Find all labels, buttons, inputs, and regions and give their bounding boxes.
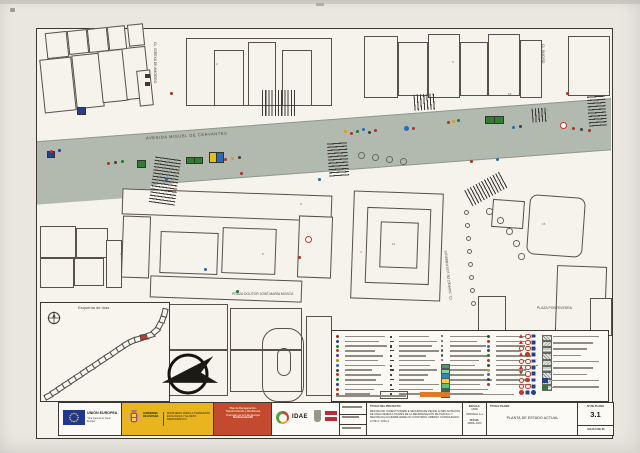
roundabout-sign [404, 126, 409, 131]
traffic-sign-glyph [519, 340, 523, 344]
legend-text-line [399, 350, 439, 352]
scanned-plan-sheet: AVENIDA MIGUEL DE CERVANTES CL. IGREXA D… [0, 0, 640, 453]
legend-text-line [345, 365, 385, 367]
municipal-emblem-icon [314, 410, 321, 422]
parcel-number: 3 [120, 252, 122, 256]
ministerio-text: MINISTERIO PARA LA TRANSICIÓN ECOLÓGICA … [167, 412, 211, 422]
street-label-praza: PRAZA DOUTOR JOSÉ MARÍA MOSCA [232, 292, 293, 296]
traffic-sign-glyph [531, 384, 536, 389]
legend-text-line [454, 394, 514, 396]
legend-text-line [399, 374, 428, 376]
legend-icon [390, 355, 392, 357]
building [74, 258, 104, 286]
building [45, 31, 70, 59]
sign-dot [457, 119, 460, 122]
legend-icon [487, 383, 490, 386]
corner-speck [316, 3, 324, 6]
tree [513, 240, 520, 247]
traffic-sign-glyph [531, 340, 536, 345]
project-header: TÍTULO DEL PROYECTO: [370, 405, 401, 408]
legend-icon [390, 345, 392, 347]
esquema-title: Esquema de rúas [78, 305, 109, 310]
utility-box [145, 74, 150, 78]
legend-text-line [450, 345, 486, 347]
sign-dot [362, 128, 365, 131]
legend-text-line [496, 355, 536, 357]
traffic-sign-glyph [519, 334, 523, 338]
logos-block: IDAE [271, 403, 339, 435]
legend-icon [336, 359, 339, 362]
legend-text-line [345, 389, 374, 391]
legend-icon [390, 389, 394, 390]
traffic-sign-glyph [525, 390, 530, 395]
sign-dot [170, 92, 173, 95]
spain-coat-of-arms-icon [128, 409, 140, 428]
urba-logo-icon [325, 411, 337, 423]
legend-text-line [399, 336, 429, 338]
bollard [469, 275, 474, 280]
bollard [467, 249, 472, 254]
sign-dot [356, 130, 359, 133]
legend-icon [336, 369, 339, 372]
traffic-sign-glyph [531, 359, 536, 364]
tree [386, 156, 393, 163]
legend-text-line [345, 341, 379, 343]
scale-value: 1/500 [463, 408, 486, 411]
legend-text-line [551, 387, 599, 389]
sign-dot [412, 127, 415, 130]
corner-speck [10, 8, 15, 12]
tree [486, 208, 493, 215]
legend-text-line [553, 374, 587, 376]
legend-highlight-note [420, 392, 450, 397]
legend-text-line [399, 389, 433, 391]
legend-icon [390, 350, 394, 351]
prtr-block: Plan de Recuperación, Transformación y R… [213, 403, 271, 435]
legend-icon [336, 340, 339, 343]
marker [494, 116, 504, 124]
idae-logo-center [279, 414, 287, 422]
traffic-sign-glyph [525, 384, 530, 389]
eu-subtitle: "Una manera de hacer Europa" [87, 417, 120, 423]
bollard [466, 236, 471, 241]
project-line: LOTE 2 / LIÑA 3 [370, 420, 460, 423]
sheet-title: PLANTA DE ESTADO ACTUAL [487, 416, 577, 420]
traffic-sign-glyph [531, 334, 536, 339]
sign-dot [107, 162, 110, 165]
legend-icon [390, 379, 394, 380]
building [221, 227, 277, 275]
traffic-sign-glyph [525, 371, 530, 376]
legend-text-line [553, 361, 599, 363]
building [40, 258, 74, 288]
building [488, 34, 520, 96]
building [164, 304, 228, 350]
traffic-sign-glyph [525, 359, 530, 364]
project-title-cell: TÍTULO DEL PROYECTO: MEJORA DE CONECTIVI… [366, 403, 462, 435]
building [87, 27, 109, 53]
legend-text-line [345, 379, 376, 381]
building [40, 226, 76, 258]
tree [358, 152, 365, 159]
sign-dot [58, 149, 61, 152]
legend-icon [487, 335, 490, 338]
traffic-sign-glyph [531, 371, 536, 376]
sign-dot [238, 156, 241, 159]
building [127, 23, 145, 47]
legend-text-line [399, 355, 426, 357]
building [428, 34, 460, 98]
sign-dot [588, 129, 591, 132]
traffic-sign-glyph [519, 371, 523, 375]
traffic-sign-glyph [531, 378, 536, 383]
building [214, 50, 244, 106]
legend-text-line [553, 336, 599, 338]
legend-text-line [345, 384, 383, 386]
traffic-sign-glyph [519, 365, 523, 369]
zebra-crossing [327, 141, 349, 176]
sign-dot [572, 127, 575, 130]
legend-text-line [399, 360, 435, 362]
traffic-sign-glyph [531, 352, 536, 357]
legend-text-line [450, 341, 477, 343]
prohibition-sign [305, 236, 312, 243]
building [159, 231, 218, 275]
building [460, 42, 488, 96]
sign-dot [121, 160, 124, 163]
scale-cell: ESCALA: 1/500 ORIGINAL A-1 FECHA: ABRIL … [462, 403, 486, 435]
eu-flag-icon [63, 410, 85, 425]
sign-dot [240, 172, 243, 175]
sheet-number: 3.1 [578, 410, 613, 419]
parcel-number: 8 [262, 252, 264, 256]
tree [518, 253, 525, 260]
sign-dot [452, 120, 455, 123]
street-label-bucino: CL. BUCIÑO [541, 44, 545, 63]
building [107, 25, 127, 51]
tree [400, 158, 407, 165]
legend-text-line [553, 342, 593, 344]
parcel-number: 2 [216, 62, 218, 66]
zebra-crossing [587, 95, 607, 126]
sign-dot [350, 132, 353, 135]
legend-text-line [345, 369, 372, 371]
building [306, 316, 332, 396]
sign-dot [298, 256, 301, 259]
legend-text-line [551, 380, 599, 382]
sheet-number-cell: Nº DE PLANO 3.1 HOJA 6 DE 26 [577, 403, 613, 435]
sign-dot [519, 125, 522, 128]
parcel-number: 15 [542, 222, 545, 226]
traffic-sign-glyph [531, 346, 536, 351]
building [398, 42, 428, 96]
legend-text-line [450, 374, 484, 376]
sheet-page: HOJA 6 DE 26 [578, 428, 613, 431]
zebra-crossing [262, 90, 296, 116]
legend-text-line [345, 345, 387, 347]
legend-text-line [450, 360, 479, 362]
traffic-sign-glyph [525, 340, 530, 345]
street-label-pontevedra: PLAZA PONTEVEDRA [537, 306, 572, 310]
legend-icon [336, 335, 339, 338]
legend-text-line [450, 350, 481, 352]
legend-text-line [399, 379, 424, 381]
legend-text-line [345, 374, 381, 376]
legend-icon [336, 345, 339, 348]
date-value: ABRIL 2023 [463, 422, 486, 425]
eu-title: UNIÓN EUROPEA [87, 411, 120, 415]
sheet-number-label: Nº DE PLANO [578, 405, 613, 408]
eu-logo-block: UNIÓN EUROPEA "Una manera de hacer Europ… [59, 403, 121, 435]
zebra-crossing [532, 107, 549, 122]
prohibition-sign [560, 122, 567, 129]
legend-text-line [399, 369, 437, 371]
bollard [470, 288, 475, 293]
legend-swatch [542, 385, 548, 390]
bollard [471, 301, 476, 306]
legend-text-line [345, 355, 383, 357]
legend-text-line [336, 395, 406, 397]
compass-icon [46, 310, 62, 326]
sign-dot [236, 290, 239, 293]
tree [497, 217, 504, 224]
legend-text-line [450, 369, 490, 371]
building [39, 56, 76, 113]
building-rounded [526, 194, 586, 258]
street-label-igrexa: CL. IGREXA DE AMOEIRO [153, 42, 157, 83]
tree [372, 154, 379, 161]
bollard [465, 223, 470, 228]
traffic-sign-glyph [531, 365, 536, 370]
bollard [468, 262, 473, 267]
legend-icon [487, 369, 490, 372]
legend-text-line [345, 360, 378, 362]
legend-text-line [399, 345, 432, 347]
building [67, 29, 89, 55]
legend-text-line [450, 336, 490, 338]
legend-icon [336, 364, 339, 367]
building [76, 228, 108, 258]
legend-text-line [450, 365, 475, 367]
north-arrow-icon [158, 348, 220, 400]
legend-text-line [399, 384, 439, 386]
sign-dot [496, 158, 499, 161]
zebra-crossing [413, 93, 436, 110]
legend-text-line [450, 384, 480, 386]
legend-text-line [399, 341, 437, 343]
legend-text-line [450, 379, 492, 381]
title-block: UNIÓN EUROPEA "Una manera de hacer Europ… [58, 402, 614, 436]
marker [194, 157, 203, 164]
building [121, 216, 151, 279]
legend-icon [336, 388, 339, 391]
legend-text-line [496, 379, 529, 381]
legend-icon [390, 374, 392, 376]
building [568, 36, 610, 96]
sign-dot [318, 178, 321, 181]
building [520, 40, 542, 98]
tree [506, 228, 513, 235]
legend-icon [390, 341, 394, 342]
legend-text-line [450, 355, 488, 357]
building [297, 215, 333, 278]
utility-box [145, 82, 150, 86]
marker [77, 107, 86, 115]
legend-text-line [553, 367, 593, 369]
prtr-line4: NextGenerationEU [218, 417, 268, 419]
sign-dot [204, 268, 207, 271]
admin-column [339, 403, 366, 435]
parcel-number: 18 [508, 92, 511, 96]
road-island [277, 348, 291, 376]
gobierno-block: GOBIERNO DE ESPAÑA MINISTERIO PARA LA TR… [121, 403, 213, 435]
legend-icon [390, 369, 394, 370]
parcel-number: 4 [360, 250, 362, 254]
legend-icon [487, 345, 490, 348]
bollard [464, 210, 469, 215]
traffic-sign-glyph [525, 365, 530, 370]
parcel-number: 9 [300, 202, 302, 206]
sign-dot [50, 150, 53, 153]
original-format: ORIGINAL A-1 [463, 413, 486, 416]
building [491, 199, 525, 229]
legend-icon [487, 340, 490, 343]
sign-dot [512, 126, 515, 129]
sign-dot [580, 128, 583, 131]
idae-wordmark: IDAE [292, 414, 308, 420]
traffic-sign-glyph [519, 390, 524, 395]
sign-dot [566, 92, 569, 95]
legend-icon [390, 365, 392, 367]
legend-icon [336, 383, 339, 386]
sign-dot [470, 160, 473, 163]
sign-dot [114, 161, 117, 164]
legend-text-line [345, 350, 375, 352]
legend-icon [390, 360, 394, 361]
sign-dot [447, 121, 450, 124]
legend-icon [487, 359, 490, 362]
building [106, 240, 122, 288]
parcel-number: 5 [452, 60, 454, 64]
legend-icon [390, 336, 392, 338]
gobierno-line2: DE ESPAÑA [143, 415, 163, 418]
sign-dot [224, 158, 227, 161]
legend-text-line [553, 348, 587, 350]
traffic-sign-glyph [519, 352, 523, 356]
sign-dot [344, 130, 347, 133]
sign-dot [231, 157, 234, 160]
traffic-sign-glyph [525, 334, 530, 339]
marker [137, 160, 146, 168]
building [364, 36, 398, 98]
parcel-number: 12 [392, 242, 395, 246]
legend-icon [487, 364, 490, 367]
legend-icon [390, 384, 392, 386]
sheet-title-label: TÍTULO PLANO: [490, 405, 510, 408]
sign-dot [368, 131, 371, 134]
building [379, 221, 419, 268]
sign-dot [165, 178, 168, 181]
sign-dot [374, 129, 377, 132]
legend-text-line [399, 365, 430, 367]
marker [216, 152, 224, 163]
legend-swatch [542, 378, 548, 383]
sheet-title-cell: TÍTULO PLANO: PLANTA DE ESTADO ACTUAL [486, 403, 577, 435]
legend-text-line [553, 355, 581, 357]
legend-text-line [450, 389, 488, 391]
legend-text-line [496, 350, 521, 352]
legend-text-line [345, 336, 385, 338]
